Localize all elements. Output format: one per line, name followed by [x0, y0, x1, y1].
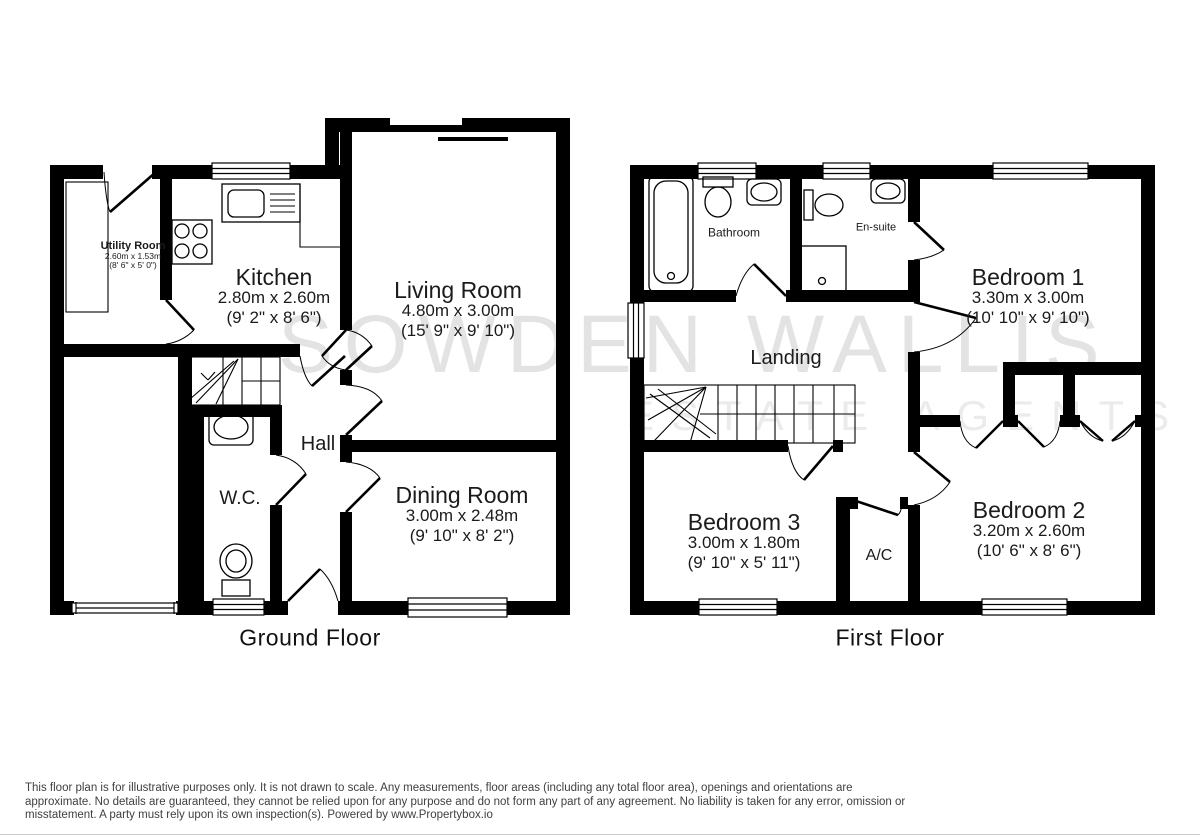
- bathroom-toilet-icon: [703, 177, 733, 217]
- room-label-bedroom-2: Bedroom 2 3.20m x 2.60m (10' 6" x 8' 6"): [973, 499, 1086, 561]
- first-floor-caption: First Floor: [836, 625, 945, 652]
- room-label-landing: Landing: [750, 348, 821, 368]
- room-label-utility: Utility Room 2.60m x 1.53m (8' 6" x 5' 0…: [101, 240, 166, 270]
- room-label-bathroom: Bathroom: [708, 227, 760, 240]
- ensuite-basin-icon: [871, 179, 905, 203]
- room-label-dining-room: Dining Room 3.00m x 2.48m (9' 10" x 8' 2…: [396, 484, 529, 546]
- disclaimer-line-3: misstatement. A party must rely upon its…: [25, 809, 905, 823]
- room-label-ensuite: En-suite: [856, 222, 896, 235]
- bathroom-basin-icon: [747, 179, 781, 205]
- hob-icon: [172, 220, 212, 264]
- bath-icon: [649, 176, 693, 292]
- bottom-divider: [0, 834, 1200, 835]
- ensuite-toilet-icon: [804, 190, 843, 220]
- shower-icon: [800, 246, 846, 292]
- first-floor-stairs: [644, 385, 855, 443]
- disclaimer-text: This floor plan is for illustrative purp…: [25, 782, 905, 823]
- room-label-wc: W.C.: [219, 489, 260, 509]
- room-label-hall: Hall: [301, 434, 335, 454]
- ground-floor-stairs: [186, 357, 280, 405]
- kitchen-sink-icon: [222, 184, 300, 222]
- room-label-bedroom-3: Bedroom 3 3.00m x 1.80m (9' 10" x 5' 11"…: [688, 511, 801, 573]
- room-label-kitchen: Kitchen 2.80m x 2.60m (9' 2" x 8' 6"): [218, 266, 330, 328]
- ground-floor-windows: [72, 163, 507, 617]
- ground-floor-caption: Ground Floor: [239, 625, 381, 652]
- floorplan-drawing: [0, 0, 1200, 770]
- wc-toilet-icon: [220, 544, 252, 596]
- room-label-living-room: Living Room 4.80m x 3.00m (15' 9" x 9' 1…: [394, 279, 522, 341]
- disclaimer-line-1: This floor plan is for illustrative purp…: [25, 782, 905, 796]
- room-label-ac: A/C: [866, 546, 893, 566]
- disclaimer-line-2: approximate. No details are guaranteed, …: [25, 796, 905, 810]
- room-label-bedroom-1: Bedroom 1 3.30m x 3.00m (10' 10" x 9' 10…: [966, 266, 1089, 328]
- floorplan-page: SOWDEN WALLIS ESTATE AGENTS: [0, 0, 1200, 839]
